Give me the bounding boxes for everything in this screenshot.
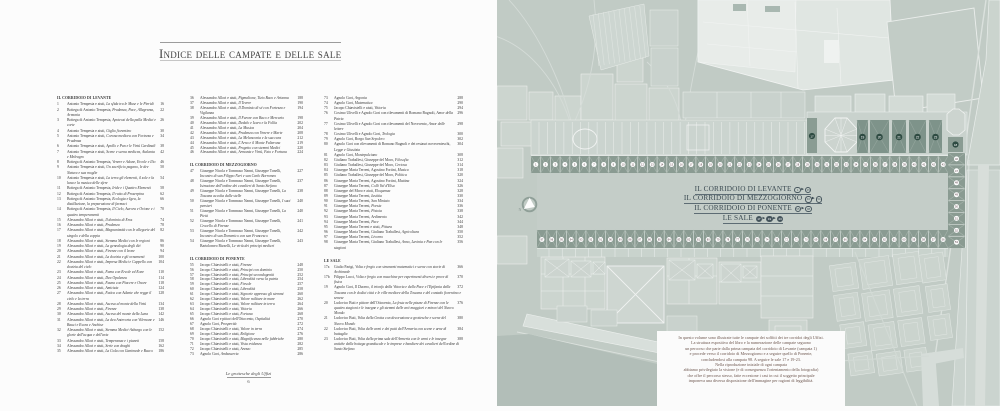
svg-text:19: 19 — [861, 135, 865, 139]
svg-text:20: 20 — [878, 135, 882, 139]
svg-text:18: 18 — [954, 143, 958, 147]
svg-text:17: 17 — [810, 134, 814, 138]
svg-text:21: 21 — [897, 135, 901, 139]
svg-text:23: 23 — [934, 135, 938, 139]
svg-text:22: 22 — [916, 135, 920, 139]
svg-text:N: N — [519, 207, 522, 212]
